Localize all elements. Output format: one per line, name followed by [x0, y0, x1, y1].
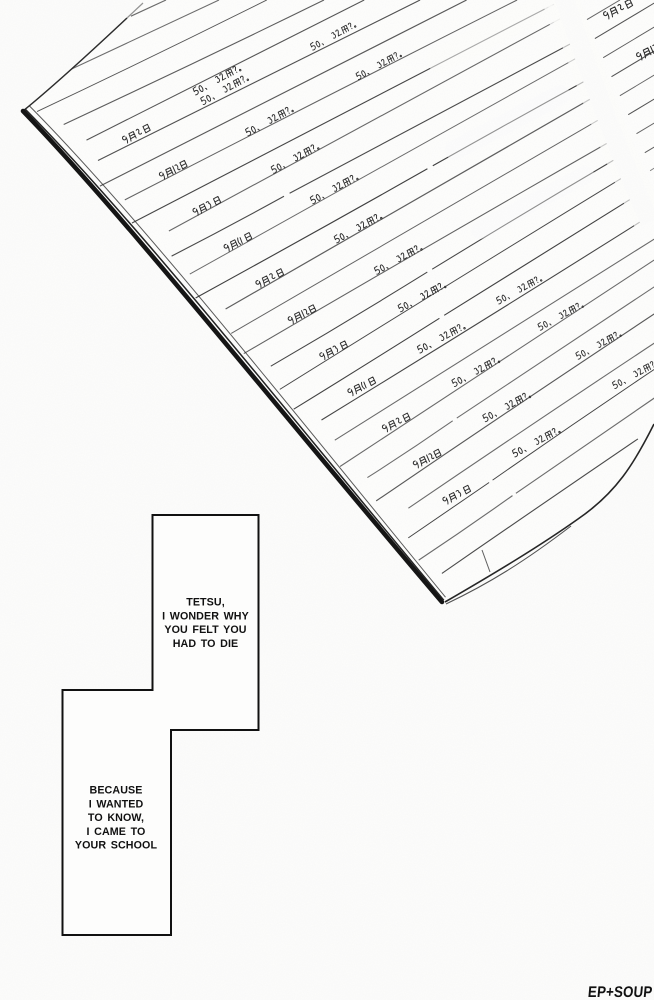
svg-text:YOUR SCHOOL: YOUR SCHOOL	[75, 840, 158, 852]
svg-text:TO KNOW,: TO KNOW,	[88, 812, 144, 824]
svg-text:I CAME TO: I CAME TO	[87, 826, 146, 838]
svg-text:HAD TO DIE: HAD TO DIE	[173, 638, 239, 650]
svg-text:EP+SOUP: EP+SOUP	[587, 984, 653, 1000]
svg-text:I WANTED: I WANTED	[89, 798, 144, 810]
svg-text:TETSU,: TETSU,	[186, 597, 225, 609]
svg-text:I WONDER WHY: I WONDER WHY	[162, 610, 249, 622]
svg-text:BECAUSE: BECAUSE	[90, 785, 143, 797]
svg-text:YOU FELT YOU: YOU FELT YOU	[164, 624, 246, 636]
